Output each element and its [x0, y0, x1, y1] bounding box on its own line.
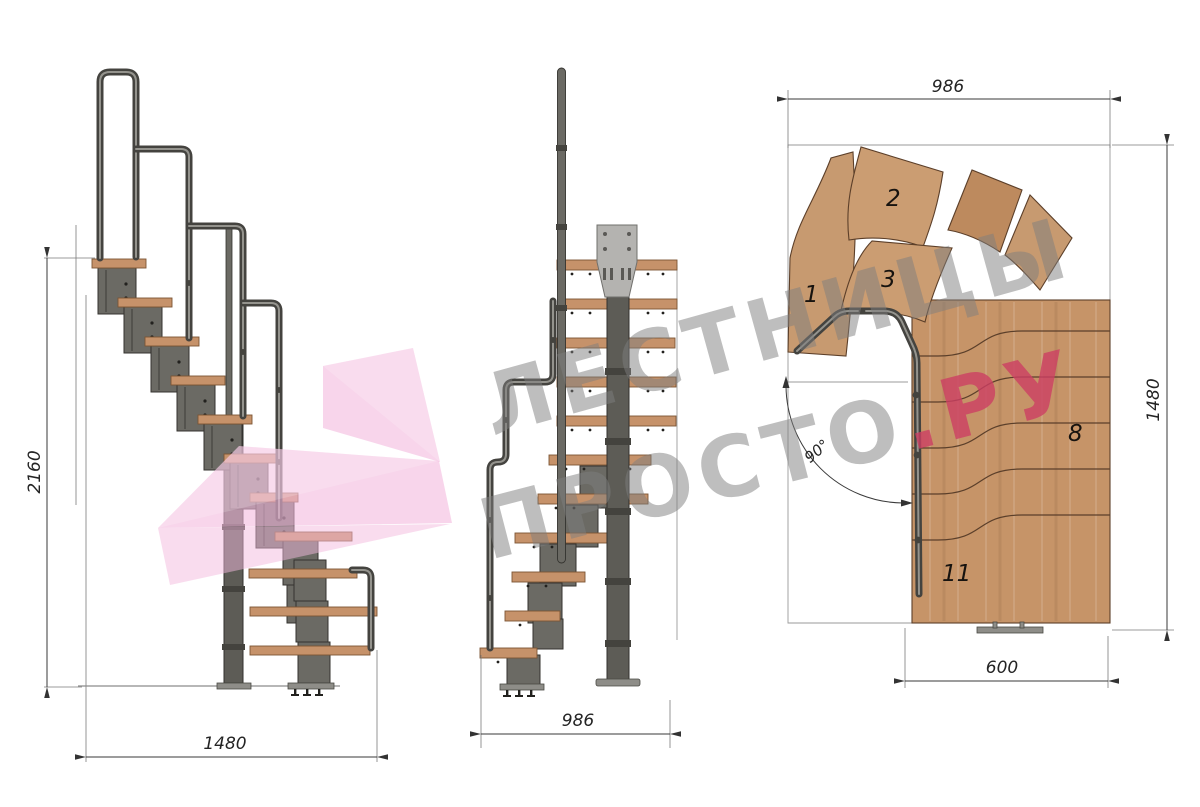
dim-plan-depth: 1480	[1112, 145, 1174, 630]
staircase-drawing: 2160 1480	[0, 0, 1200, 807]
step-number-11: 11	[942, 561, 971, 587]
step-number-2: 2	[886, 186, 901, 212]
dim-plan-exit-width: 600	[905, 628, 1108, 688]
dim-label-2160: 2160	[25, 450, 45, 493]
dim-label-986-plan: 986	[932, 77, 965, 97]
dim-plan-width: 986	[788, 77, 1110, 148]
drawing-canvas: 2160 1480	[0, 0, 1200, 807]
dim-label-1480: 1480	[203, 734, 246, 754]
dim-label-600: 600	[986, 658, 1018, 678]
dim-label-986-front: 986	[562, 711, 595, 731]
front-mounting-plate	[597, 225, 637, 297]
anchor-bolts	[503, 690, 535, 697]
base-plate	[288, 683, 334, 689]
dim-label-1480-plan: 1480	[1144, 378, 1164, 421]
anchor-bolts	[291, 689, 323, 696]
dim-side-height: 2160	[25, 258, 95, 687]
stair-module	[294, 560, 326, 601]
plan-base-plate	[977, 622, 1043, 633]
